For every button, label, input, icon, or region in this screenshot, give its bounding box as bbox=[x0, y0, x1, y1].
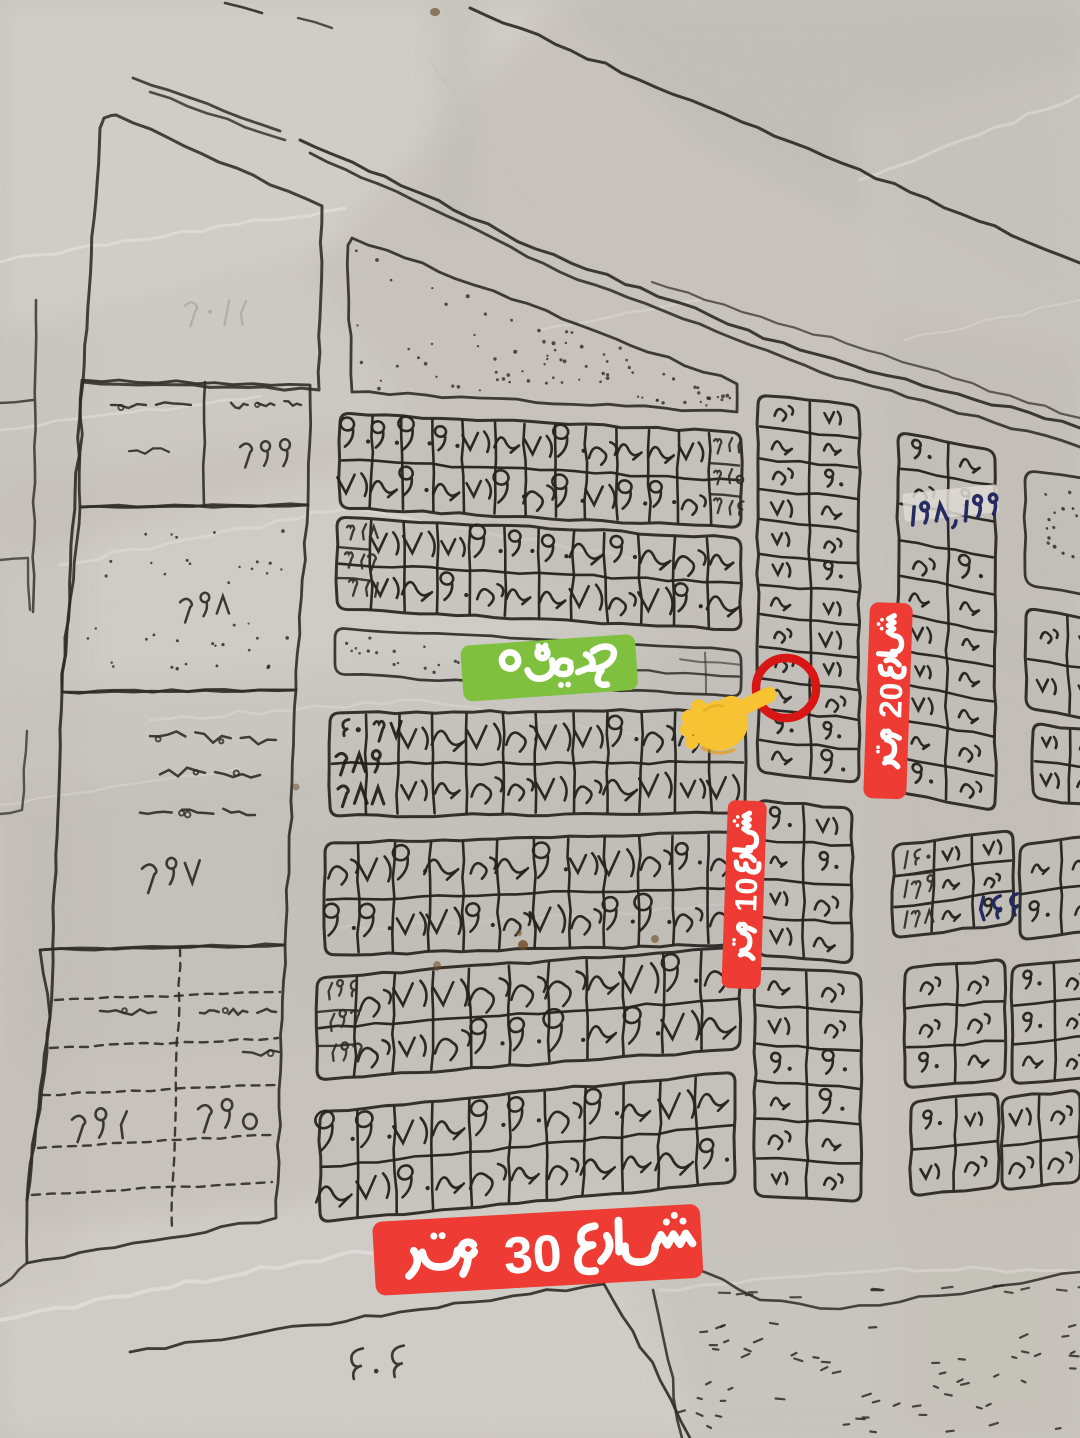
svg-text:20: 20 bbox=[872, 682, 909, 719]
svg-text:30: 30 bbox=[502, 1225, 563, 1286]
svg-text:10: 10 bbox=[728, 877, 764, 912]
